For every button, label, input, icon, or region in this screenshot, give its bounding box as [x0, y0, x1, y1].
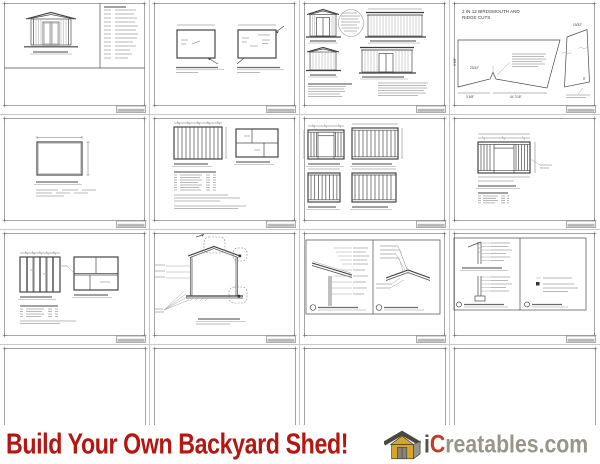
sheeting-panel-layout	[60, 257, 118, 298]
sheet-birdsmouth: 2 IN 12 BIRDSMOUTH AND RIDGE CUTS 3 5/8"…	[450, 0, 600, 115]
brand-wordmark: iCreatables.com	[424, 432, 588, 457]
dim-bottom-left: 3 5/8"	[466, 95, 474, 99]
side-wall-framing-2	[350, 169, 396, 210]
ridge-detail	[376, 246, 430, 310]
floor-sheeting-plan	[234, 129, 278, 165]
roof-plan	[237, 25, 284, 73]
brand-rest: reatables.com	[445, 430, 588, 458]
dim-bottom-center: 44 7/16"	[510, 95, 522, 99]
floor-framing-plan	[172, 122, 226, 167]
birdsmouth-title-line2: RIDGE CUTS	[462, 15, 490, 20]
sheet-wall-sheeting	[0, 230, 150, 345]
sheet-blank-4	[450, 345, 600, 425]
rear-wall-framing	[306, 169, 340, 210]
sheet-foundation	[0, 115, 150, 230]
sheet-wall-framing	[300, 115, 450, 230]
building-section-drawing	[150, 230, 299, 344]
section-leaders	[154, 265, 190, 312]
sheet-floor-framing	[150, 115, 300, 230]
floor-framing-drawing	[150, 115, 299, 229]
rear-elevation	[306, 48, 341, 78]
dim-notch: 23/32"	[470, 66, 479, 70]
drawing-index-table	[104, 7, 138, 58]
wall-bottom-detail	[457, 276, 513, 307]
sheet-title-page	[0, 0, 150, 115]
sheeting-table	[20, 306, 76, 324]
foundation-drawing	[0, 115, 149, 229]
icreatables-shed-logo	[384, 428, 422, 461]
floor-materials-list	[174, 172, 246, 209]
sheet-elevations	[300, 0, 450, 115]
title-page-drawing	[0, 0, 149, 114]
sheet-wall-details	[450, 230, 600, 345]
dim-left: 3 5/8"	[453, 58, 457, 66]
promo-banner: Build Your Own Backyard Shed! iCreatable…	[0, 425, 600, 464]
side-elevation	[365, 9, 426, 43]
sheet-blank-1	[0, 345, 150, 425]
wall-framing-drawing	[300, 115, 449, 229]
birdsmouth-drawing: 2 IN 12 BIRDSMOUTH AND RIDGE CUTS 3 5/8"…	[450, 0, 599, 114]
wall-details-drawing	[450, 230, 599, 344]
wall-sheeting-drawing	[0, 230, 149, 344]
sheet-blank-2	[150, 345, 300, 425]
side-wall-framing	[350, 124, 402, 167]
dim-top-right: 19/32"	[573, 23, 582, 27]
rafter-template	[458, 40, 560, 88]
promo-headline: Build Your Own Backyard Shed!	[6, 430, 348, 459]
front-elevation	[306, 10, 341, 44]
brand-c: C	[430, 430, 445, 458]
sheet-door-wall	[450, 115, 600, 230]
floor-plan	[176, 25, 224, 73]
roof-details-drawing	[300, 230, 449, 344]
dim-right-piece: 5"	[583, 77, 586, 81]
section-outline	[186, 234, 243, 301]
sheet-building-section	[150, 230, 300, 345]
front-wall-framing	[304, 125, 344, 167]
section-callouts	[204, 237, 247, 303]
legend	[525, 278, 579, 307]
siding-panel-layout	[18, 252, 60, 300]
general-notes	[378, 83, 428, 96]
shed-front-elevation	[24, 13, 78, 55]
sheet-roof-details	[300, 230, 450, 345]
side-door-elevation	[359, 48, 416, 80]
materials-table	[308, 84, 352, 97]
plans-drawing	[150, 0, 299, 114]
elevations-drawing	[300, 0, 449, 114]
shed-plans-promo-image: 2 IN 12 BIRDSMOUTH AND RIDGE CUTS 3 5/8"…	[0, 0, 600, 464]
notes-cloud	[339, 10, 364, 37]
wall-top-detail	[460, 242, 512, 271]
door-wall-drawing	[450, 115, 599, 229]
eave-detail	[310, 248, 369, 310]
sheet-blank-3	[300, 345, 450, 425]
birdsmouth-title-line1: 2 IN 12 BIRDSMOUTH AND	[462, 9, 520, 14]
sheet-plans	[150, 0, 300, 115]
